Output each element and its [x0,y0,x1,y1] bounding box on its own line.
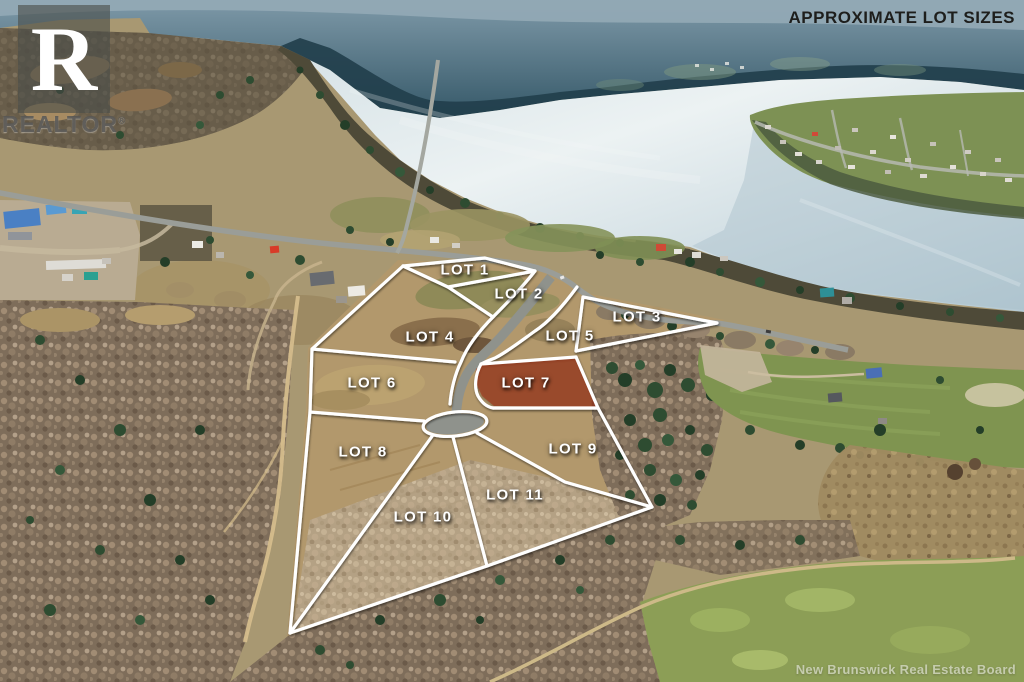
realtor-logo-mark: R [18,5,110,113]
aerial-listing-photo: LOT 1LOT 2LOT 3LOT 4LOT 5LOT 6LOT 7LOT 8… [0,0,1024,682]
watermark: New Brunswick Real Estate Board [796,662,1016,677]
realtor-logo-letter: R [31,9,97,109]
realtor-logo-text: REALTOR® [2,111,124,138]
aerial-landscape [0,0,1024,682]
page-title: APPROXIMATE LOT SIZES [789,8,1015,28]
registered-trademark-symbol: ® [118,115,126,126]
